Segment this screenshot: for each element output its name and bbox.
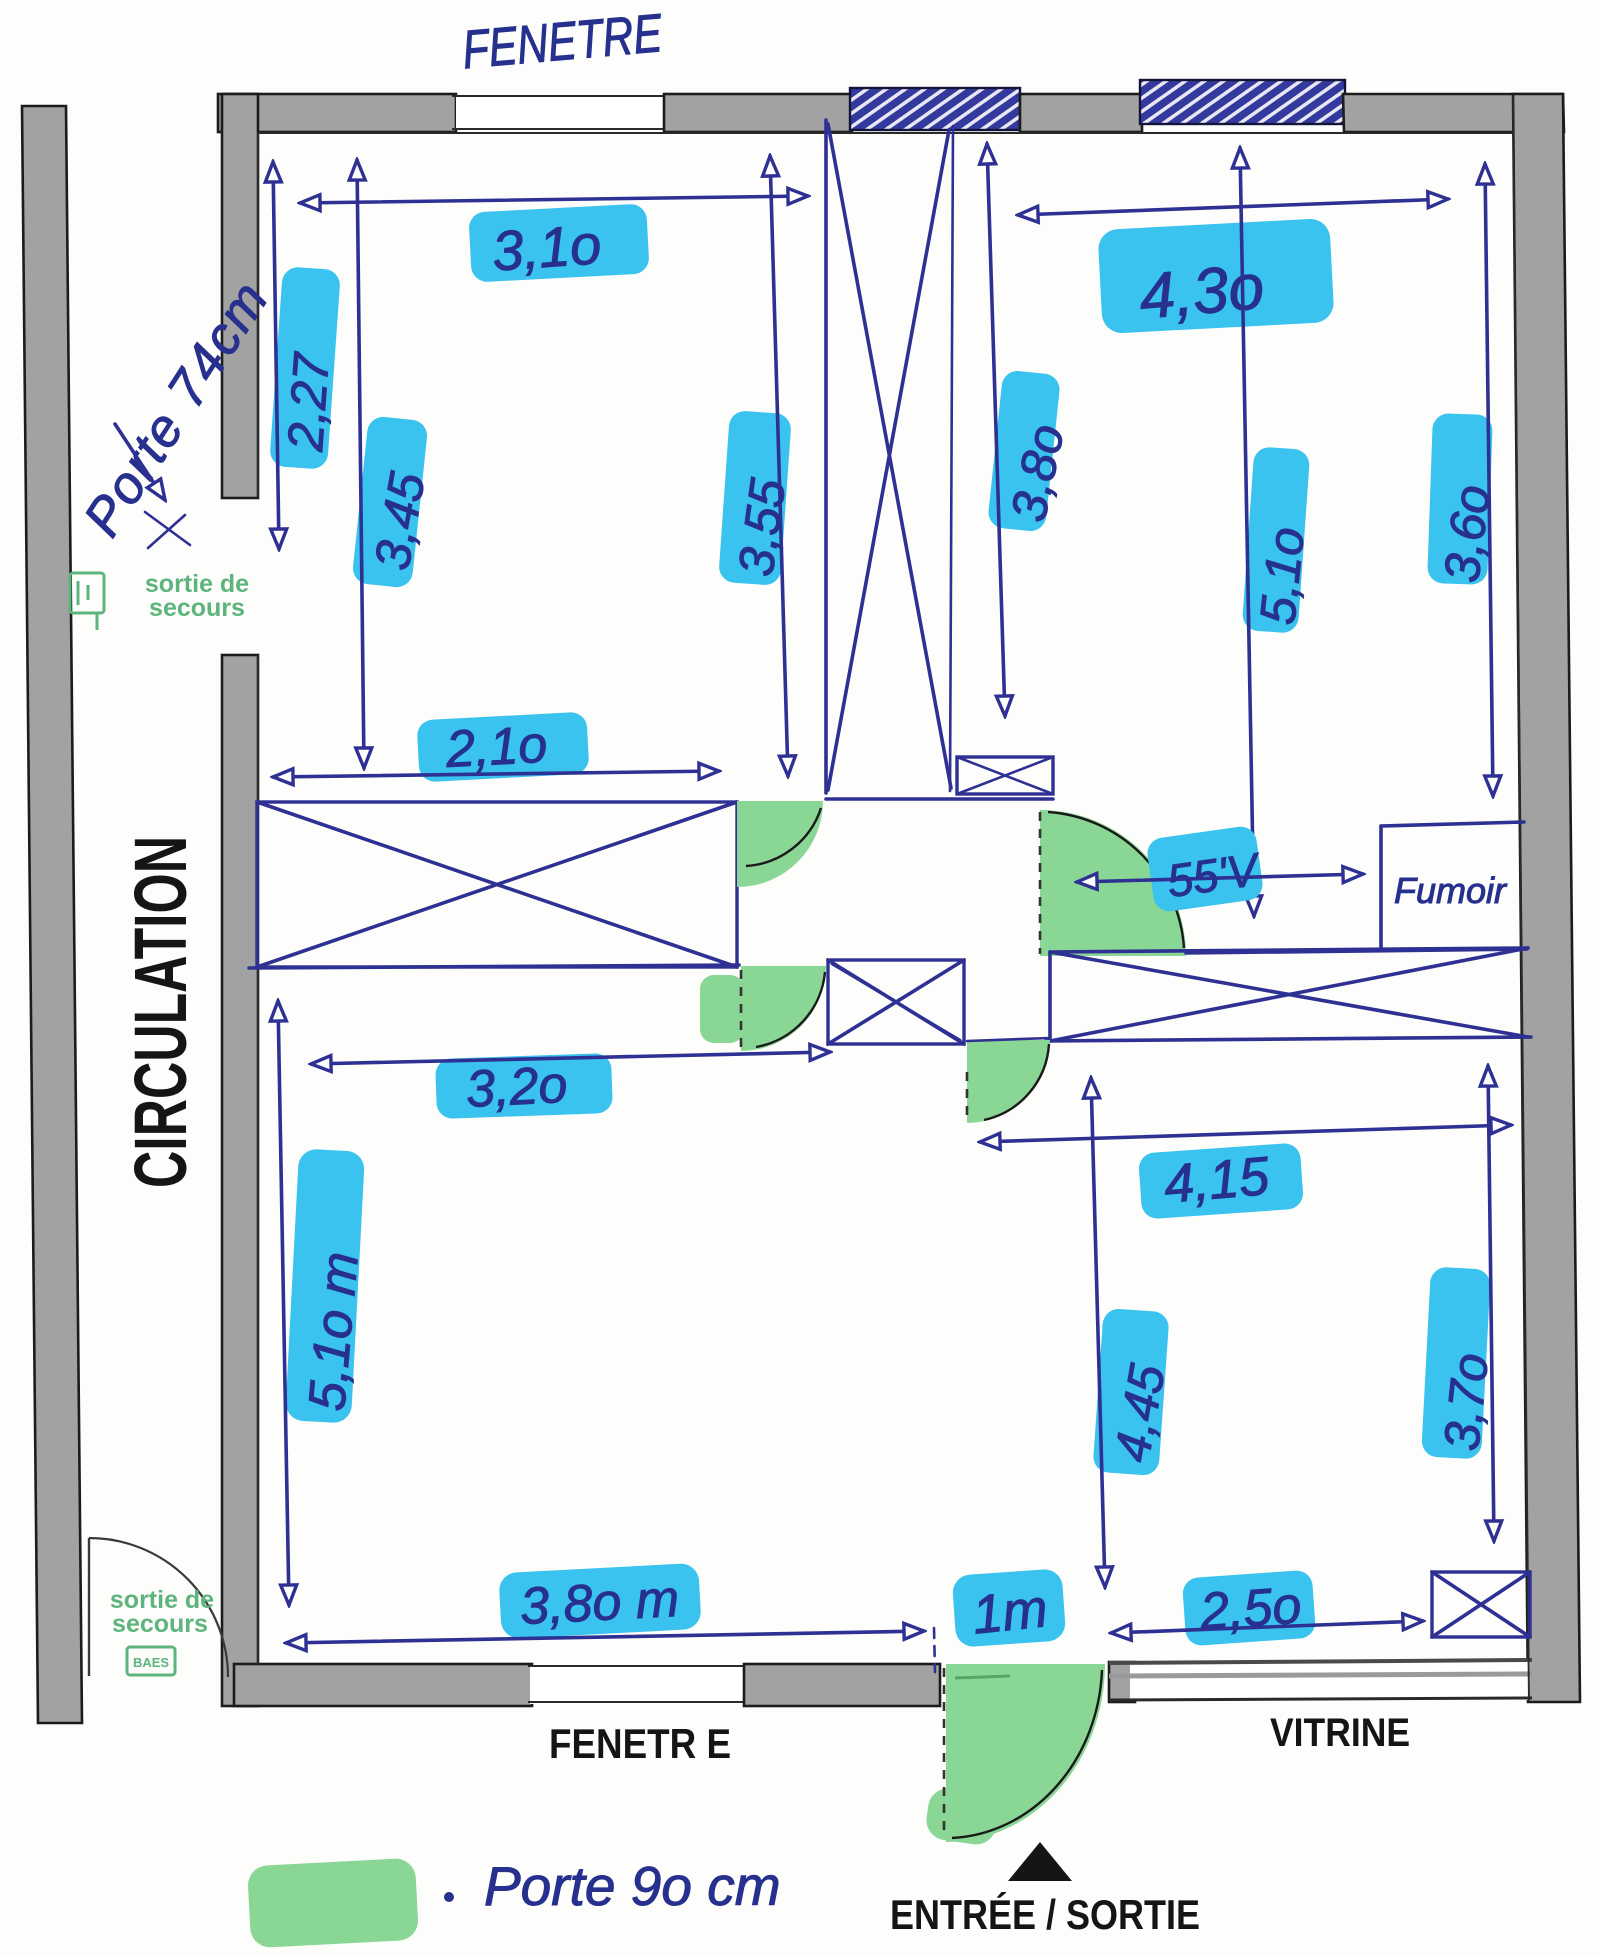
svg-text:ENTRÉE / SORTIE: ENTRÉE / SORTIE bbox=[890, 1891, 1200, 1938]
svg-text:BAES: BAES bbox=[133, 1655, 169, 1670]
svg-text:3,2o: 3,2o bbox=[465, 1056, 569, 1119]
svg-text:1m: 1m bbox=[969, 1578, 1050, 1646]
svg-text:2,5o: 2,5o bbox=[1197, 1576, 1303, 1641]
svg-text:2,1o: 2,1o bbox=[444, 716, 549, 779]
svg-text:3,1o: 3,1o bbox=[490, 212, 603, 282]
svg-text:CIRCULATION: CIRCULATION bbox=[119, 836, 202, 1188]
svg-text:Fumoir: Fumoir bbox=[1394, 870, 1508, 911]
svg-text:2,27: 2,27 bbox=[277, 350, 340, 454]
svg-text:5,1o: 5,1o bbox=[1249, 525, 1315, 628]
svg-text:secours: secours bbox=[149, 594, 245, 622]
svg-text:3,6o: 3,6o bbox=[1433, 482, 1500, 585]
svg-text:4,3o: 4,3o bbox=[1136, 250, 1266, 333]
svg-text:Porte 9o cm: Porte 9o cm bbox=[484, 1855, 781, 1917]
svg-text:4,15: 4,15 bbox=[1162, 1146, 1273, 1215]
svg-text:secours: secours bbox=[112, 1610, 208, 1638]
svg-text:3,8o m: 3,8o m bbox=[519, 1570, 681, 1636]
svg-text:FENETR E: FENETR E bbox=[549, 1720, 731, 1767]
svg-text:VITRINE: VITRINE bbox=[1270, 1711, 1410, 1755]
svg-text:3,7o: 3,7o bbox=[1433, 1351, 1499, 1454]
